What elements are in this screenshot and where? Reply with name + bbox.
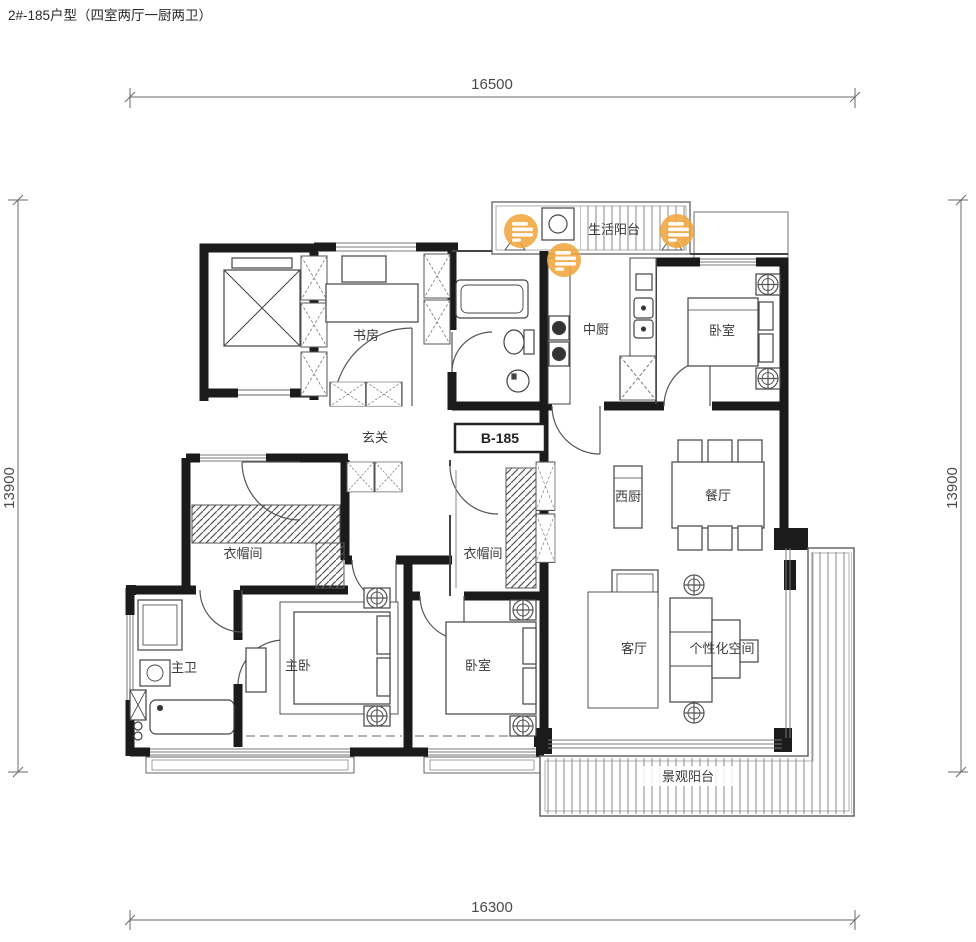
room-label-flex-space: 个性化空间 [689, 641, 754, 656]
room-label-master-bedroom: 主卧 [285, 658, 311, 673]
dimension-bottom: 16300 [471, 899, 513, 916]
room-label-bedroom-ne: 卧室 [709, 323, 735, 338]
room-label-service-balcony: 生活阳台 [588, 222, 640, 237]
room-label-view-balcony: 景观阳台 [662, 769, 714, 784]
room-label-study: 书房 [353, 328, 379, 343]
ne-bay-strip [694, 212, 788, 258]
elevator-icon [224, 258, 300, 346]
notes-icon[interactable] [547, 243, 581, 277]
notes-icon[interactable] [504, 214, 538, 248]
dimension-left: 13900 [1, 467, 18, 509]
unit-tag-label: B-185 [481, 430, 519, 446]
room-label-bedroom-s: 卧室 [465, 658, 491, 673]
page-title: 2#-185户型（四室两厅一厨两卫） [8, 7, 212, 23]
notes-icon[interactable] [660, 214, 694, 248]
room-label-entry: 玄关 [362, 430, 388, 445]
room-label-chinese-kitchen: 中厨 [583, 322, 609, 337]
room-label-cloakroom-master: 衣帽间 [223, 546, 262, 561]
floorplan-canvas: 16500 16300 13900 13900 [0, 0, 976, 937]
room-label-west-kitchen: 西厨 [615, 489, 641, 504]
room-label-master-bath: 主卫 [171, 660, 197, 675]
room-label-cloakroom-second: 衣帽间 [463, 546, 502, 561]
room-label-dining: 餐厅 [705, 488, 731, 503]
unit-tag: B-185 [455, 424, 545, 452]
room-label-living: 客厅 [621, 641, 647, 656]
dimension-right: 13900 [944, 467, 961, 509]
dimension-top: 16500 [471, 76, 513, 93]
washing-machine-icon [542, 208, 574, 240]
